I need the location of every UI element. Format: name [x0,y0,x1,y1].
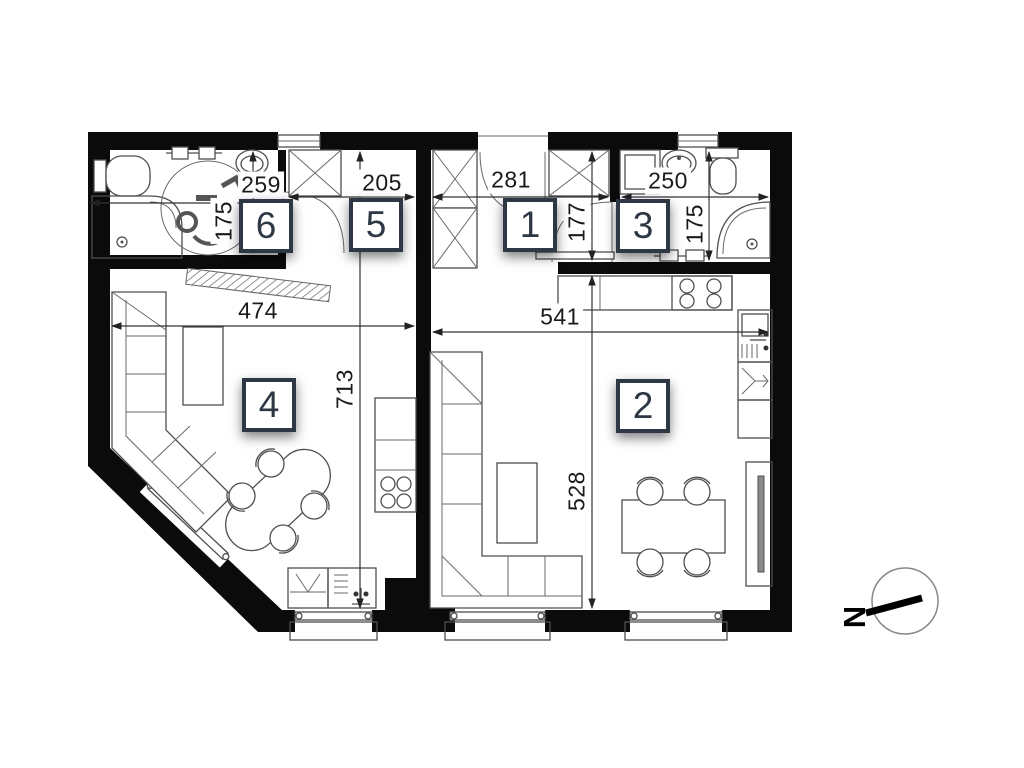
floor-plan-drawing [0,0,1024,768]
chair-symbol [684,477,710,505]
sink-unit-symbol [328,568,376,608]
north-label: N [837,606,873,628]
bottom-windows [290,612,727,640]
sink-unit-symbol [738,310,772,362]
sliding-door-leaf [536,252,614,259]
room-badge-2: 2 [616,379,670,433]
corridor5-fixtures [289,150,341,196]
tv-unit-symbol [746,462,772,586]
north-arrow-icon [866,598,922,613]
room-badge-4: 4 [242,378,296,432]
room-number: 1 [520,204,541,246]
dim-corridor5-width: 205 [359,170,405,197]
fridge-symbol [738,362,772,438]
toilet-symbol [706,148,738,194]
dim-bath6-width: 259 [238,172,284,199]
wardrobe-symbol [549,150,609,196]
shower-symbol [717,202,770,258]
dim-room2-width: 541 [537,304,583,331]
chair-symbol [637,549,663,577]
wardrobe-symbol [289,150,341,196]
dining-table-symbol [622,500,725,553]
coffee-table-symbol [497,463,537,543]
toilet-symbol [94,156,150,196]
coffee-table-symbol [183,327,223,405]
room-number: 2 [633,385,654,427]
room-number: 6 [256,205,277,247]
dim-room4-width: 474 [235,298,281,325]
room2-furniture [430,276,772,608]
room-badge-6: 6 [239,199,293,253]
dim-hall1-height: 177 [564,199,591,245]
chair-symbol [637,477,663,505]
dim-bath3-height: 175 [682,201,709,247]
dim-room4-depth: 713 [332,366,359,412]
dim-bath3-width: 250 [645,168,691,195]
room-number: 4 [259,384,280,426]
fridge-symbol [288,568,328,608]
room-badge-1: 1 [503,198,557,252]
north-compass [866,568,938,634]
dim-room2-depth: 528 [564,468,591,514]
room-number: 3 [633,205,654,247]
floor-plan: 259 205 281 250 175 177 175 474 541 713 … [0,0,1024,768]
dim-hall1-width: 281 [488,167,534,194]
chair-symbol [684,549,710,577]
room-badge-5: 5 [349,198,403,252]
wardrobe-symbol [433,150,477,268]
corner-sofa-symbol [430,352,582,608]
room-number: 5 [366,204,387,246]
kitchen-counter-symbol [558,276,732,310]
kitchen-counter-symbol [375,398,416,512]
dim-bath6-height: 175 [211,198,238,244]
room-badge-3: 3 [616,199,670,253]
